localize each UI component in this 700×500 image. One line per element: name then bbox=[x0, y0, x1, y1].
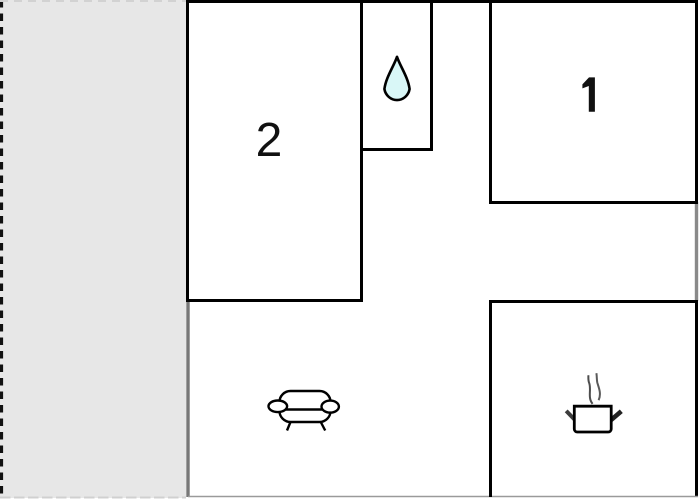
svg-text:2: 2 bbox=[256, 114, 283, 167]
